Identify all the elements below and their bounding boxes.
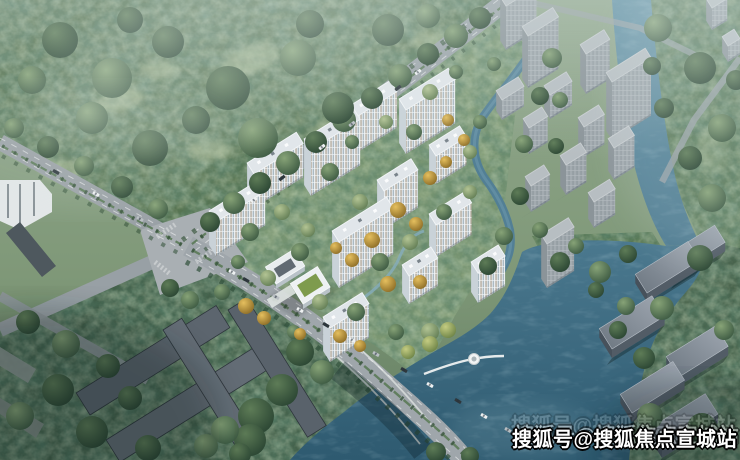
overlook-deck-center xyxy=(472,357,477,362)
render-canvas xyxy=(0,0,740,460)
watermark: 搜狐号@搜狐焦点宣城站 xyxy=(512,423,737,452)
aerial-render-image: 搜狐号@搜狐焦点宣城站 搜狐号@搜狐焦点宣城站 搜狐号@搜狐焦点宣城站 xyxy=(0,0,740,460)
